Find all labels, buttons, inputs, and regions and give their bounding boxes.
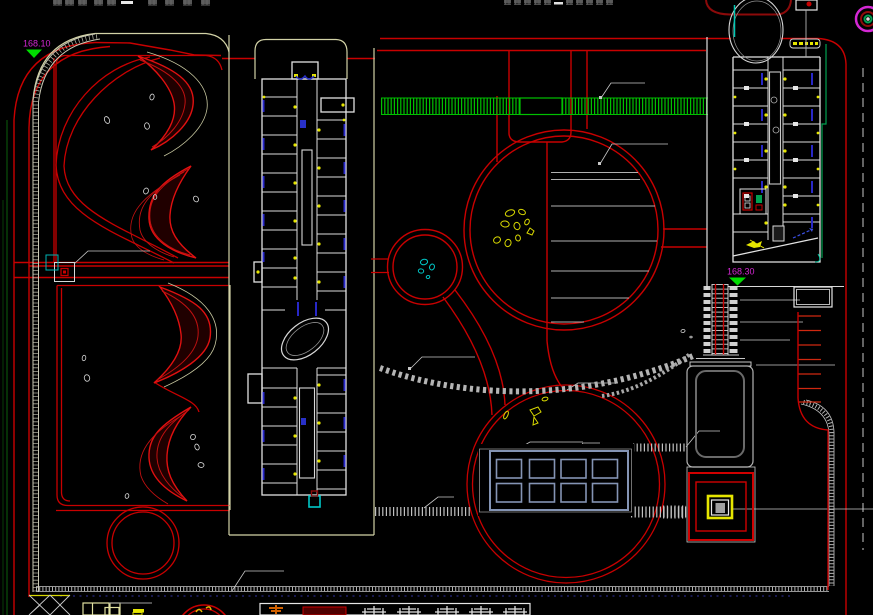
svg-text:168.10: 168.10 xyxy=(23,39,51,49)
svg-text:168.30: 168.30 xyxy=(727,267,755,277)
